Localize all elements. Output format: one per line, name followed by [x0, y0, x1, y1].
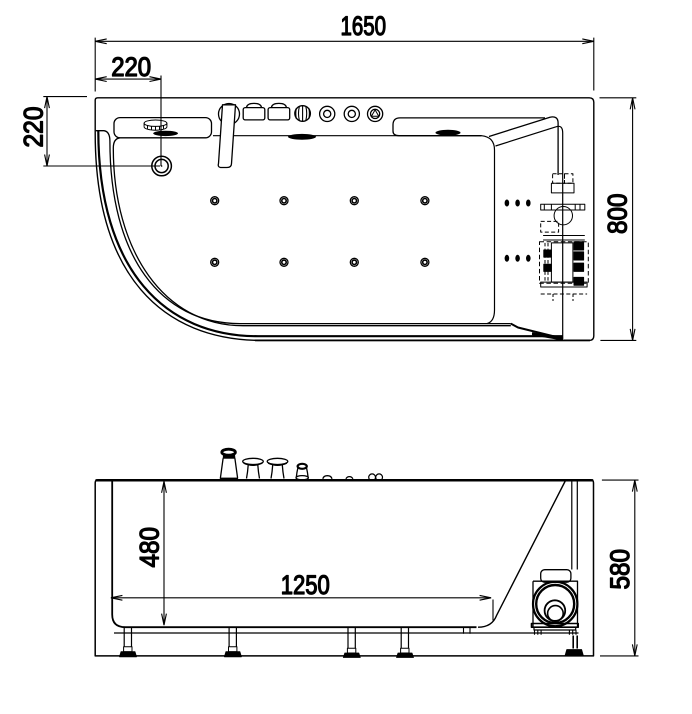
svg-text:800: 800 — [603, 194, 633, 235]
svg-text:1250: 1250 — [281, 570, 330, 600]
svg-text:580: 580 — [605, 549, 635, 590]
svg-text:480: 480 — [135, 527, 165, 568]
svg-text:220: 220 — [19, 107, 49, 148]
svg-text:1650: 1650 — [341, 11, 387, 41]
svg-text:220: 220 — [111, 52, 151, 82]
